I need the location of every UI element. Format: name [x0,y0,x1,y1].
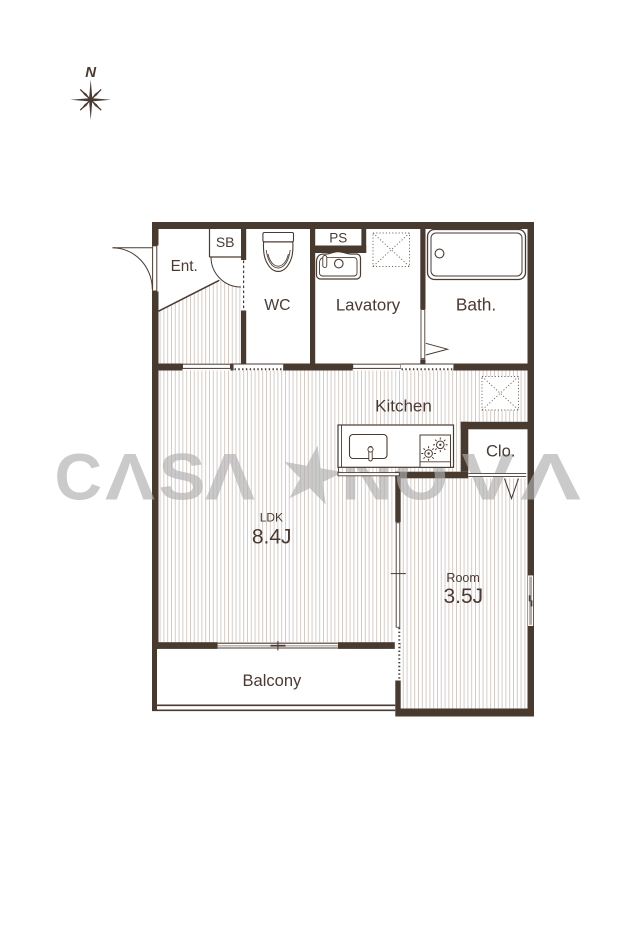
svg-text:Λ: Λ [205,440,255,514]
svg-text:C: C [55,440,103,514]
svg-text:WC: WC [264,297,290,314]
svg-text:Bath.: Bath. [456,294,496,314]
svg-text:3.5J: 3.5J [443,585,483,608]
svg-text:Ent.: Ent. [171,258,198,275]
svg-text:Lavatory: Lavatory [336,295,401,314]
svg-text:Λ: Λ [520,440,581,514]
svg-text:SB: SB [216,234,235,250]
svg-text:Balcony: Balcony [243,672,302,690]
svg-text:Clo.: Clo. [486,441,516,460]
svg-text:Kitchen: Kitchen [375,397,432,416]
svg-text:Room: Room [446,571,479,585]
svg-text:N: N [85,64,97,81]
svg-text:S: S [159,440,206,514]
svg-text:PS: PS [329,231,347,246]
svg-text:8.4J: 8.4J [252,525,292,548]
svg-text:Λ: Λ [105,440,155,514]
svg-text:LDK: LDK [260,511,283,525]
